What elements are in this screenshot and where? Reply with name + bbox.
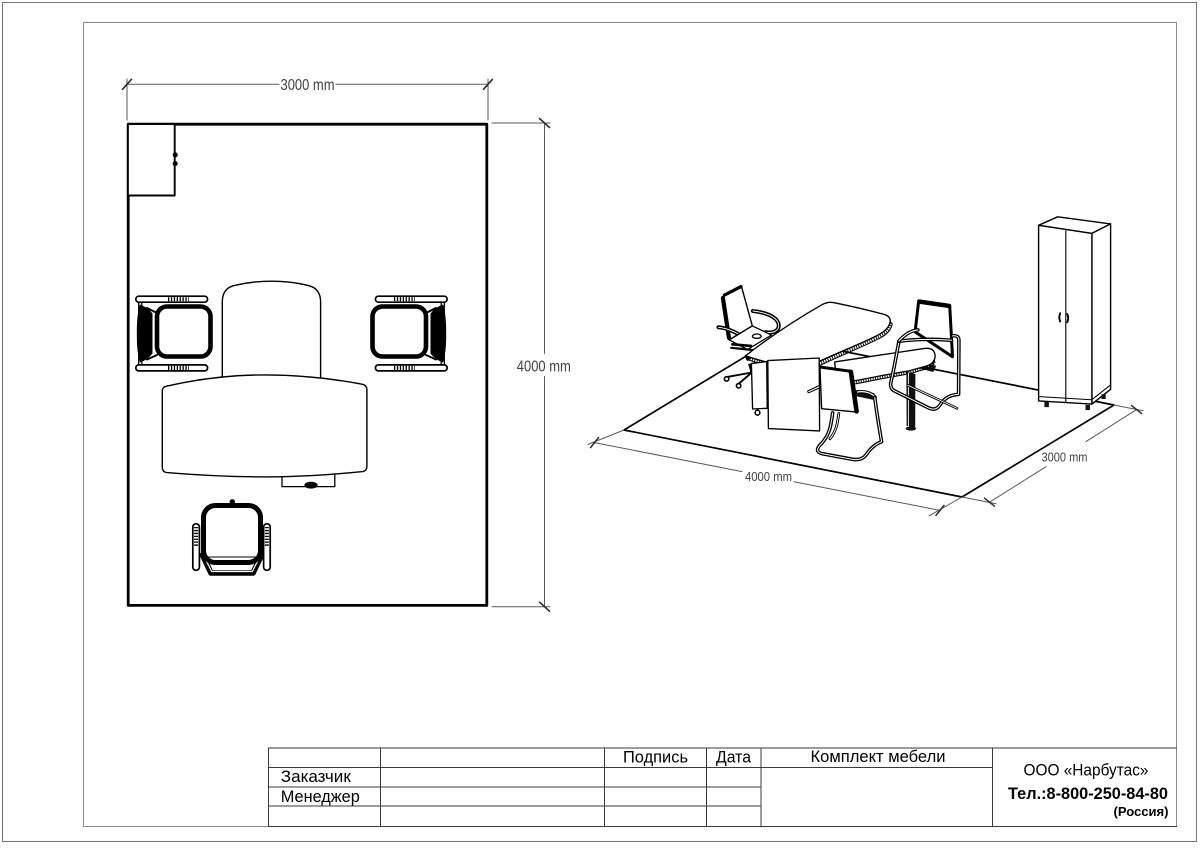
svg-text:3000 mm: 3000 mm	[281, 77, 335, 94]
svg-text:Заказчик: Заказчик	[281, 767, 352, 786]
svg-text:4000 mm: 4000 mm	[517, 358, 571, 375]
svg-text:Подпись: Подпись	[623, 748, 688, 767]
svg-text:Менеджер: Менеджер	[281, 787, 360, 806]
svg-text:Тел.:8-800-250-84-80: Тел.:8-800-250-84-80	[1008, 784, 1168, 803]
svg-text:4000 mm: 4000 mm	[745, 470, 792, 484]
svg-text:ООО «Нарбутас»: ООО «Нарбутас»	[1024, 761, 1149, 780]
svg-text:3000 mm: 3000 mm	[1042, 451, 1088, 465]
svg-text:Дата: Дата	[716, 748, 751, 767]
svg-text:(Россия): (Россия)	[1114, 805, 1169, 819]
svg-text:Комплект мебели: Комплект мебели	[811, 747, 946, 766]
